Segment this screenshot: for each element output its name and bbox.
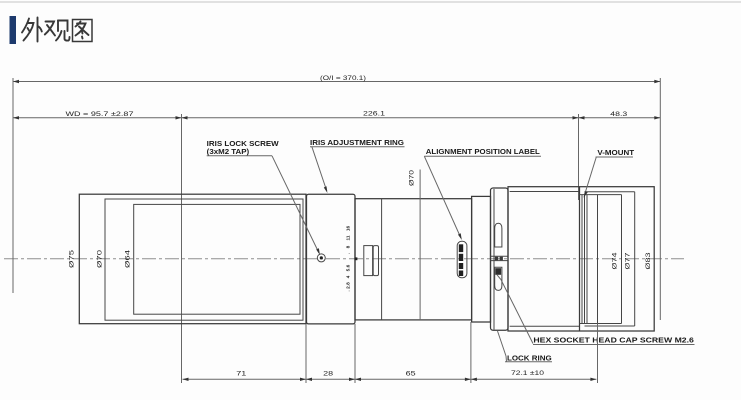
svg-text:ALIGNMENT POSITION LABEL: ALIGNMENT POSITION LABEL bbox=[426, 147, 540, 156]
svg-text:Ø64: Ø64 bbox=[125, 249, 132, 268]
svg-text:28: 28 bbox=[323, 371, 334, 378]
svg-text:HEX SOCKET HEAD CAP SCREW M2.6: HEX SOCKET HEAD CAP SCREW M2.6 bbox=[533, 336, 694, 345]
svg-text:71: 71 bbox=[236, 371, 247, 378]
svg-text:V-MOUNT: V-MOUNT bbox=[597, 148, 634, 157]
svg-text:Ø70: Ø70 bbox=[97, 249, 104, 268]
svg-text:226.1: 226.1 bbox=[363, 111, 385, 118]
svg-text:Ø83: Ø83 bbox=[645, 252, 652, 270]
svg-text:8: 8 bbox=[345, 245, 351, 248]
svg-text:Ø75: Ø75 bbox=[69, 249, 76, 268]
svg-text:48.3: 48.3 bbox=[610, 111, 628, 118]
svg-text:Ø77: Ø77 bbox=[625, 252, 632, 270]
svg-text:(O/I = 370.1): (O/I = 370.1) bbox=[320, 75, 366, 82]
svg-text:.: . bbox=[346, 290, 351, 291]
svg-text:(3xM2 TAP): (3xM2 TAP) bbox=[207, 147, 250, 156]
svg-text:IRIS ADJUSTMENT RING: IRIS ADJUSTMENT RING bbox=[310, 138, 404, 147]
svg-text:.: . bbox=[346, 253, 351, 254]
svg-text:4: 4 bbox=[345, 275, 351, 278]
svg-text:72.1 ±10: 72.1 ±10 bbox=[511, 370, 544, 377]
svg-text:65: 65 bbox=[406, 371, 417, 378]
svg-text:LOCK RING: LOCK RING bbox=[507, 354, 552, 363]
svg-text:5.6: 5.6 bbox=[345, 264, 351, 271]
svg-text:11: 11 bbox=[345, 235, 351, 240]
svg-text:Ø74: Ø74 bbox=[612, 252, 619, 270]
svg-text:2.8: 2.8 bbox=[345, 282, 351, 289]
svg-text:16: 16 bbox=[345, 226, 351, 232]
svg-text:WD = 95.7 ±2.87: WD = 95.7 ±2.87 bbox=[66, 111, 135, 118]
svg-text:Ø70: Ø70 bbox=[409, 170, 416, 186]
